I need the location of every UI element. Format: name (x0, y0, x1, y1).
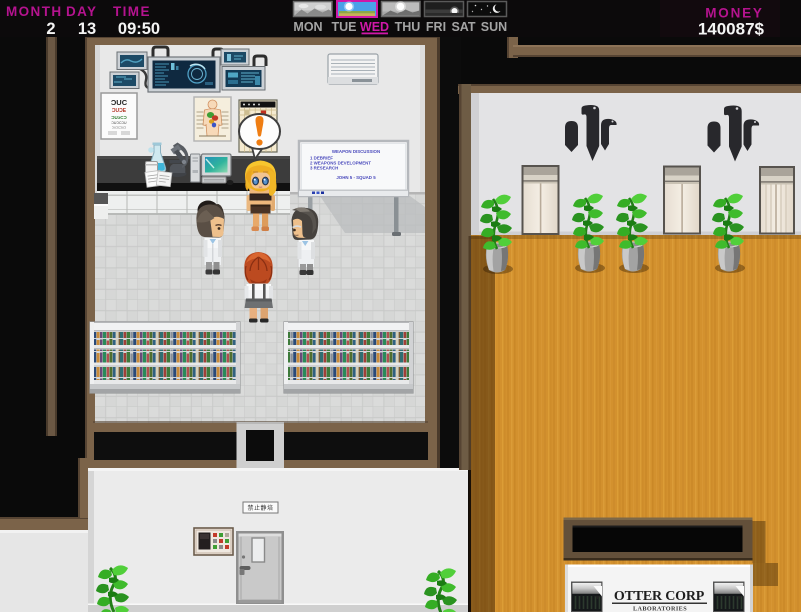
svg-text:TIME: TIME (113, 4, 151, 19)
svg-text:WED: WED (360, 20, 389, 34)
svg-text:ƆUϽΕ: ƆUϽΕ (112, 108, 127, 114)
svg-text:LABORATORIES: LABORATORIES (633, 606, 687, 612)
svg-text:ƆUϽϹƆUϽ: ƆUϽϹƆUϽ (112, 126, 126, 130)
svg-text:禁止静培: 禁止静培 (247, 504, 273, 512)
svg-text:3 RESEARCH: 3 RESEARCH (310, 166, 338, 171)
svg-text:TUE: TUE (332, 20, 357, 34)
svg-text:ƆUC: ƆUC (111, 98, 128, 107)
svg-text:09:50: 09:50 (118, 20, 160, 38)
svg-text:MONTH: MONTH (6, 4, 63, 19)
svg-text:DAY: DAY (66, 4, 97, 19)
svg-text:SAT: SAT (451, 20, 475, 34)
svg-text:FRI: FRI (426, 20, 446, 34)
svg-text:MONEY: MONEY (705, 6, 764, 21)
svg-text:ƆUͻϹƆ: ƆUͻϹƆ (111, 115, 127, 120)
svg-text:13: 13 (78, 20, 96, 38)
svg-text:2: 2 (46, 20, 55, 38)
svg-text:OTTER CORP: OTTER CORP (614, 589, 705, 604)
svg-text:JOHN 5 - SQUAD 5: JOHN 5 - SQUAD 5 (336, 175, 376, 180)
svg-text:ƆUϽϹƆU: ƆUϽϹƆU (111, 121, 127, 125)
svg-text:140087$: 140087$ (698, 20, 765, 39)
svg-text:WEAPON DISCUSSION: WEAPON DISCUSSION (332, 149, 380, 154)
svg-text:MON: MON (293, 20, 322, 34)
svg-text:SUN: SUN (481, 20, 507, 34)
svg-text:THU: THU (395, 20, 421, 34)
